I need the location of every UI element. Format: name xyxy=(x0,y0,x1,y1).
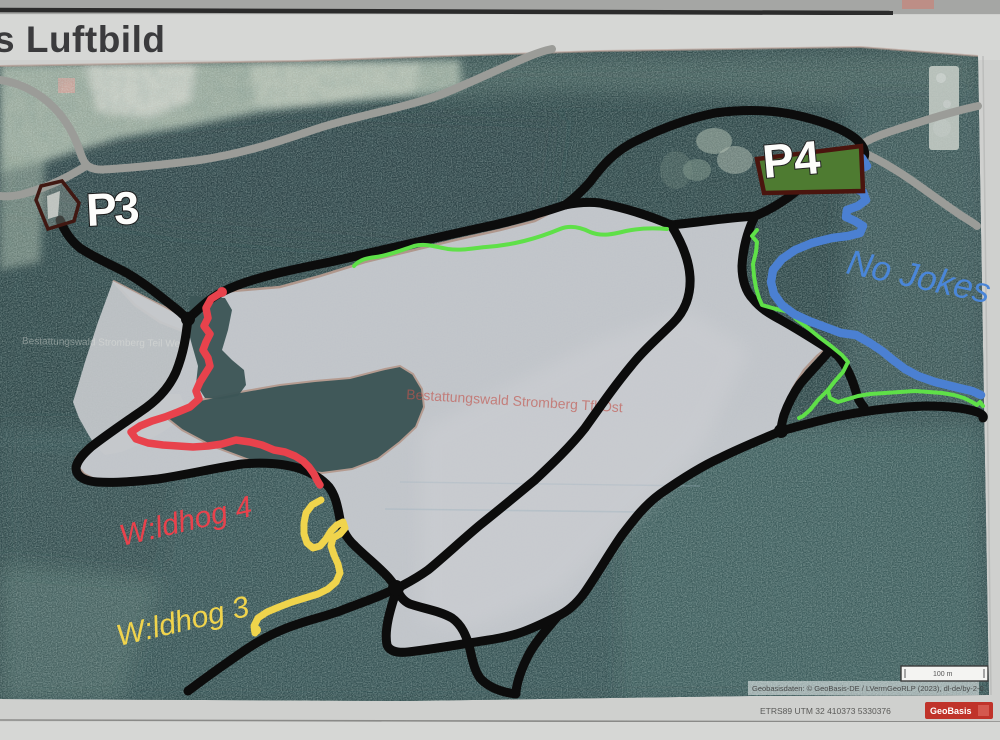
svg-text:P3: P3 xyxy=(85,181,139,236)
svg-text:P4: P4 xyxy=(760,130,822,188)
svg-text:GeoBasis: GeoBasis xyxy=(930,706,972,716)
svg-text:ETRS89 UTM 32 410373 5330376: ETRS89 UTM 32 410373 5330376 xyxy=(760,706,891,716)
svg-text:100 m: 100 m xyxy=(933,671,953,678)
svg-text:Geobasisdaten: © GeoBasis-DE /: Geobasisdaten: © GeoBasis-DE / LVermGeoR… xyxy=(752,684,984,693)
svg-text:s Luftbild: s Luftbild xyxy=(0,19,165,60)
